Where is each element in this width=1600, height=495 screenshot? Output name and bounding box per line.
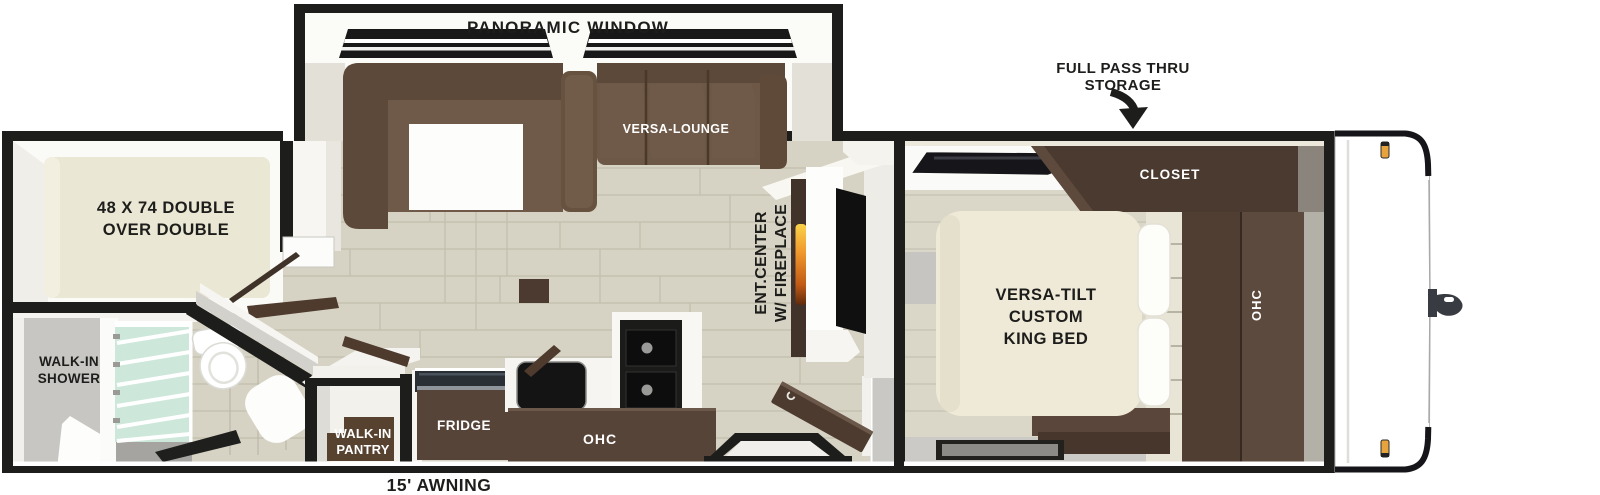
svg-text:PANTRY: PANTRY — [336, 442, 389, 457]
svg-text:VERSA-TILT: VERSA-TILT — [996, 286, 1097, 304]
svg-text:WALK-IN: WALK-IN — [39, 354, 99, 369]
svg-text:ENT.CENTER: ENT.CENTER — [753, 211, 770, 315]
svg-text:KING BED: KING BED — [1004, 330, 1089, 348]
svg-text:SHOWER: SHOWER — [38, 371, 101, 386]
svg-text:W/ FIREPLACE: W/ FIREPLACE — [773, 204, 790, 322]
svg-text:OVER DOUBLE: OVER DOUBLE — [103, 221, 230, 239]
svg-text:PANORAMIC WINDOW: PANORAMIC WINDOW — [467, 18, 669, 37]
svg-text:OHC: OHC — [1249, 289, 1264, 321]
svg-text:FRIDGE: FRIDGE — [437, 418, 491, 433]
svg-text:48 X 74 DOUBLE: 48 X 74 DOUBLE — [97, 199, 235, 217]
svg-text:OHC: OHC — [583, 431, 617, 447]
svg-text:CLOSET: CLOSET — [1140, 167, 1201, 182]
svg-text:STORAGE: STORAGE — [1085, 77, 1162, 94]
svg-text:CUSTOM: CUSTOM — [1009, 308, 1083, 326]
svg-text:VERSA-LOUNGE: VERSA-LOUNGE — [623, 122, 730, 136]
svg-text:WALK-IN: WALK-IN — [335, 426, 392, 441]
svg-text:15' AWNING: 15' AWNING — [387, 475, 492, 495]
svg-text:FULL PASS THRU: FULL PASS THRU — [1056, 60, 1189, 77]
